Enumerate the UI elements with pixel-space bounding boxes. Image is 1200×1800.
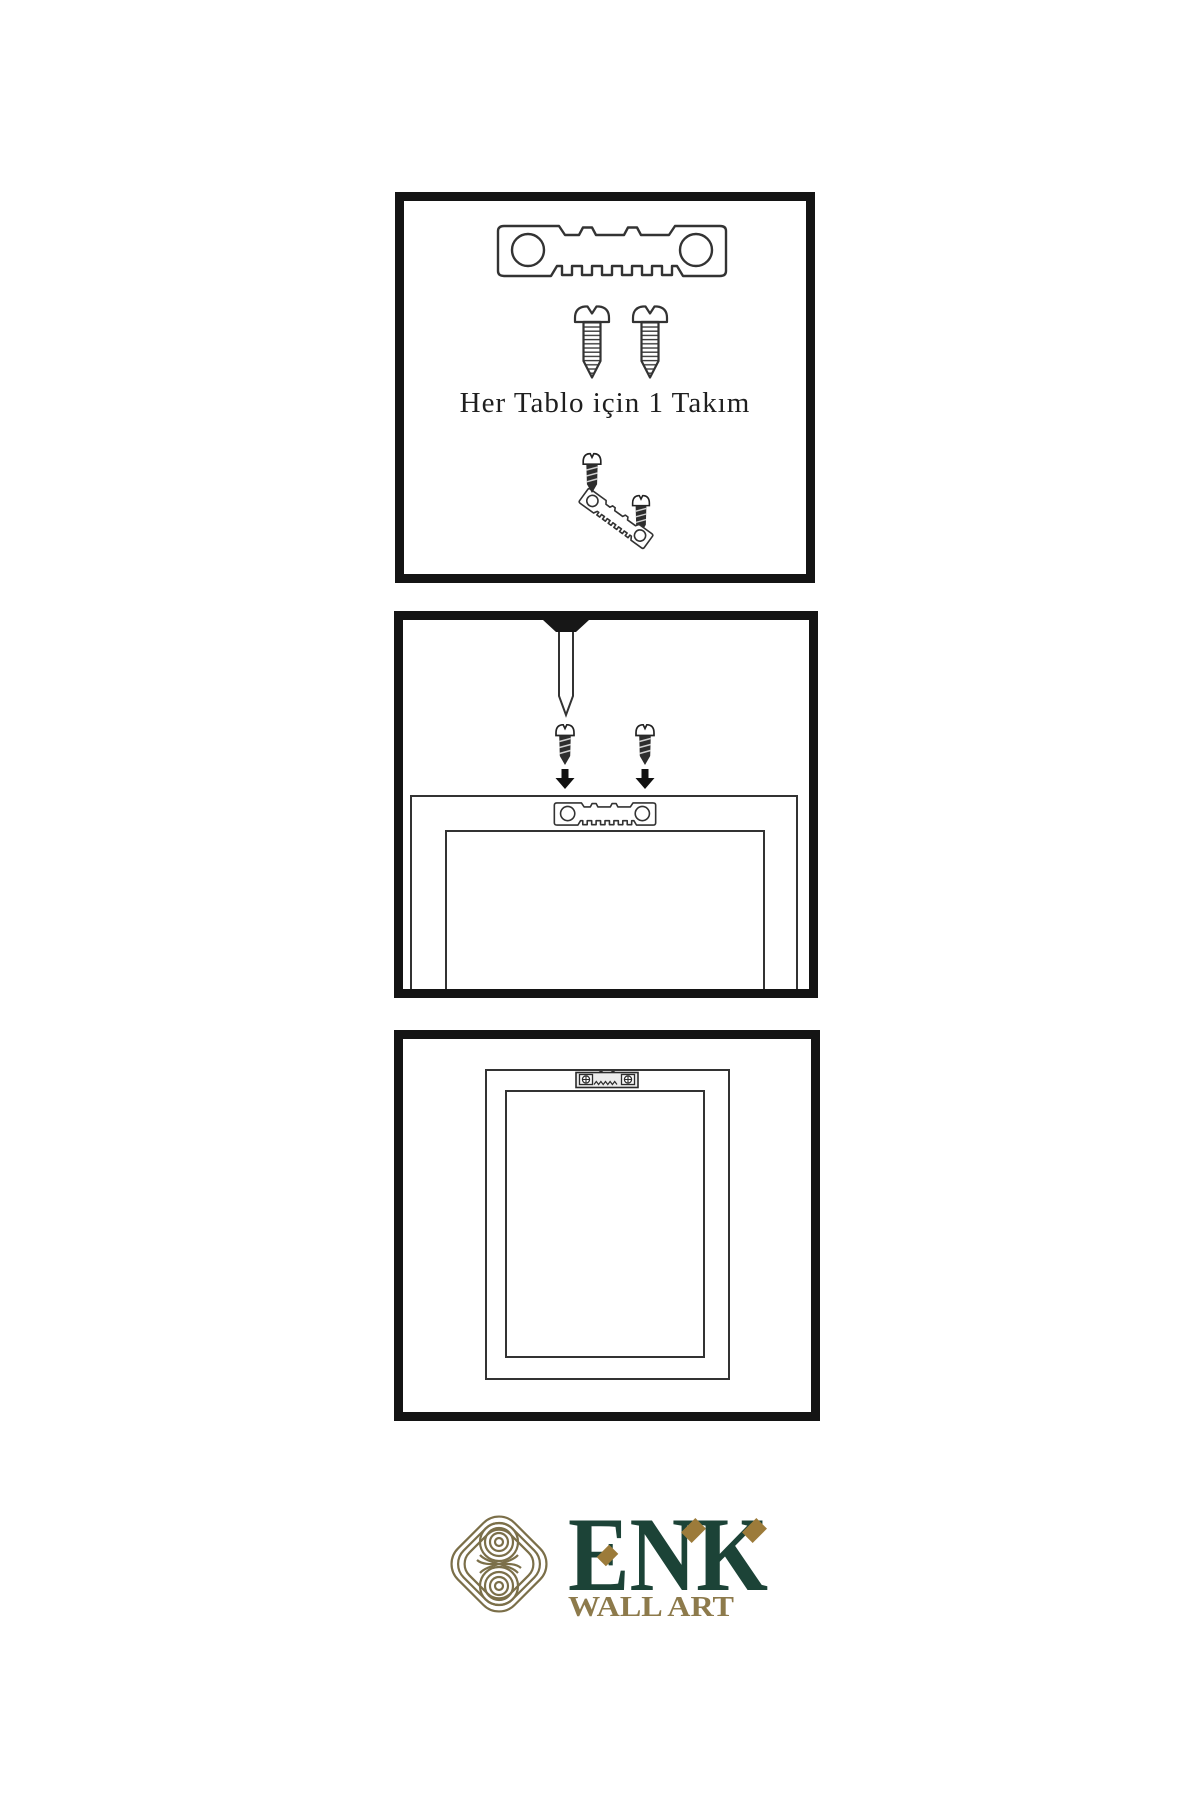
arrow-down-icon <box>635 769 655 789</box>
sawtooth-hanger-icon <box>495 222 729 280</box>
knot-logo-icon <box>437 1498 561 1630</box>
sawtooth-hanger-mounted-icon <box>553 801 657 827</box>
screw-icon <box>572 304 612 380</box>
fixed-hanger-icon <box>575 1071 639 1089</box>
dark-screw-icon <box>634 723 656 766</box>
step-panel-mounting <box>394 611 818 998</box>
step-panel-hardware-kit: Her Tablo için 1 Takım <box>395 192 815 583</box>
brand-tagline-text: WALL ART <box>568 1592 734 1623</box>
frame-back-inner-outline <box>445 830 765 998</box>
kit-caption: Her Tablo için 1 Takım <box>404 387 806 420</box>
step-panel-hanging <box>394 1030 820 1421</box>
dark-screw-icon <box>581 452 603 494</box>
nail-icon <box>542 620 590 718</box>
arrow-down-icon <box>555 769 575 789</box>
picture-frame-inner-outline <box>505 1090 705 1358</box>
dark-screw-icon <box>554 723 576 766</box>
screw-icon <box>630 304 670 380</box>
brand-tagline: WALL ART <box>567 1592 747 1624</box>
